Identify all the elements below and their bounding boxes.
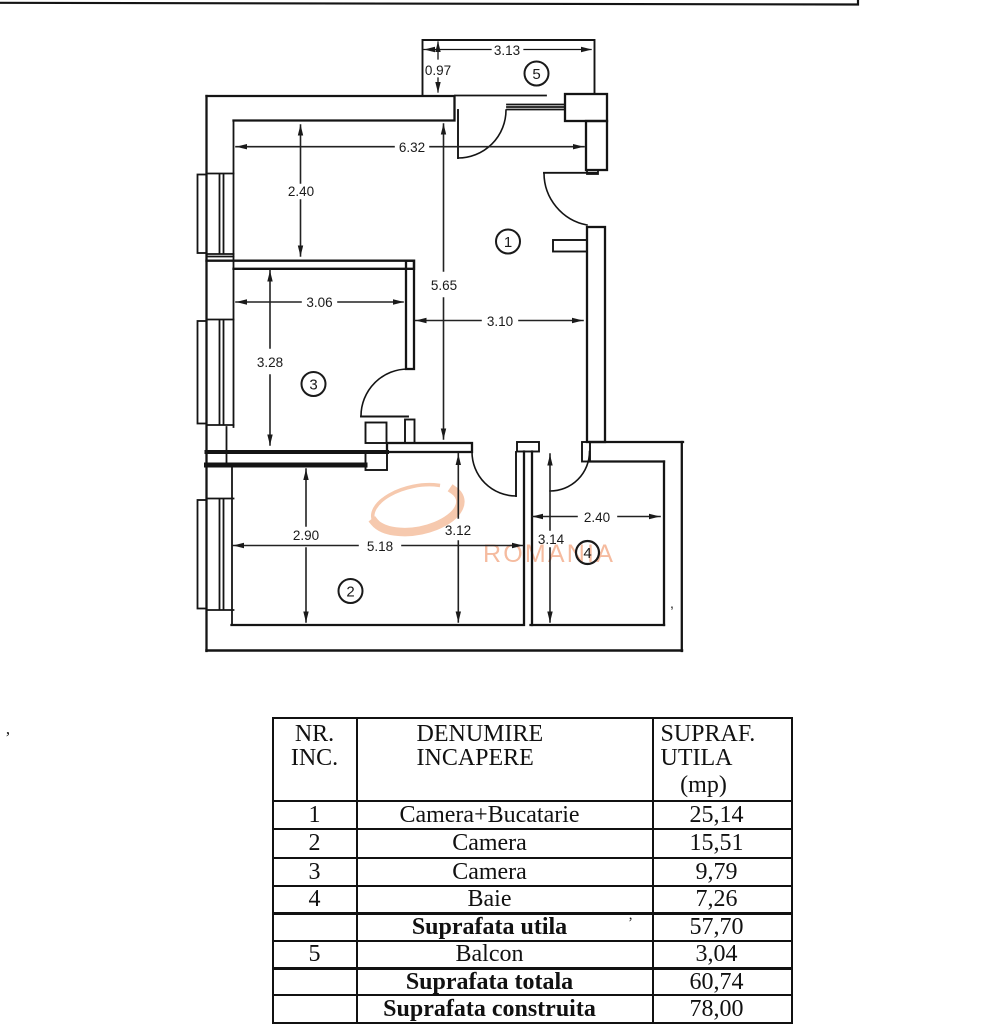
svg-text:3.28: 3.28 bbox=[257, 355, 283, 370]
svg-text:5.18: 5.18 bbox=[367, 539, 393, 554]
svg-text:3.14: 3.14 bbox=[538, 532, 565, 547]
svg-text:3: 3 bbox=[309, 377, 317, 394]
svg-text:4: 4 bbox=[583, 545, 591, 562]
svg-text:3.12: 3.12 bbox=[445, 523, 471, 538]
svg-text:5: 5 bbox=[532, 66, 540, 83]
svg-text:3.10: 3.10 bbox=[487, 314, 513, 329]
svg-text:6.32: 6.32 bbox=[399, 140, 425, 155]
svg-text:5.65: 5.65 bbox=[431, 278, 457, 293]
svg-text:1: 1 bbox=[504, 234, 512, 251]
svg-text:0.97: 0.97 bbox=[425, 63, 451, 78]
svg-text:2.90: 2.90 bbox=[293, 528, 319, 543]
svg-text:3.06: 3.06 bbox=[306, 295, 332, 310]
svg-text:’: ’ bbox=[5, 728, 11, 747]
svg-text:3.13: 3.13 bbox=[494, 43, 520, 58]
svg-text:2.40: 2.40 bbox=[288, 184, 314, 199]
svg-text:2: 2 bbox=[346, 584, 354, 601]
svg-text:,: , bbox=[670, 595, 674, 611]
svg-text:2.40: 2.40 bbox=[584, 510, 610, 525]
